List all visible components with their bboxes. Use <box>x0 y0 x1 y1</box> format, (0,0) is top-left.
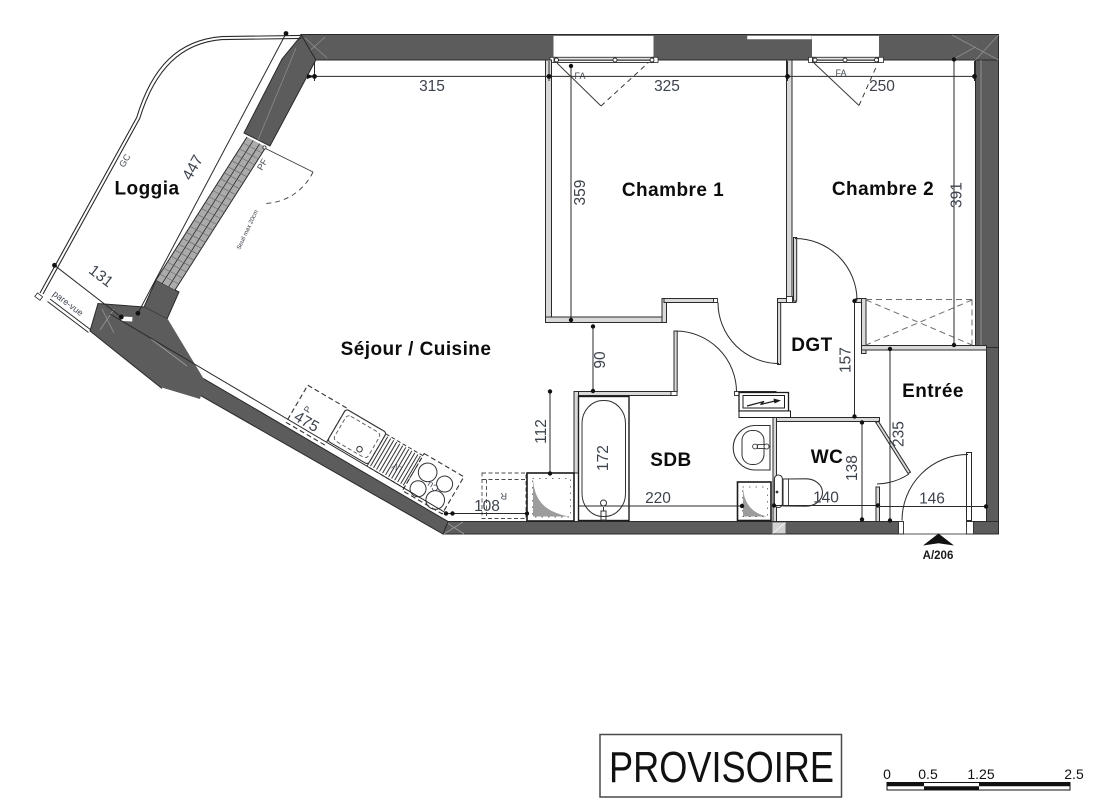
svg-text:250: 250 <box>869 78 895 95</box>
svg-text:Entrée: Entrée <box>902 381 964 402</box>
svg-text:220: 220 <box>645 490 671 507</box>
svg-text:157: 157 <box>838 347 855 373</box>
svg-text:FA: FA <box>574 71 585 81</box>
svg-text:Chambre 2: Chambre 2 <box>832 179 934 200</box>
svg-text:90: 90 <box>592 351 609 369</box>
svg-text:315: 315 <box>419 78 445 95</box>
svg-text:391: 391 <box>949 182 966 208</box>
svg-text:2.5: 2.5 <box>1064 766 1084 782</box>
svg-text:108: 108 <box>474 498 500 515</box>
svg-text:R: R <box>500 491 507 501</box>
svg-text:SDB: SDB <box>650 450 691 471</box>
svg-text:Loggia: Loggia <box>115 179 180 200</box>
svg-text:DGT: DGT <box>791 335 832 356</box>
svg-text:1.25: 1.25 <box>967 766 994 782</box>
svg-text:0.5: 0.5 <box>918 766 938 782</box>
svg-text:235: 235 <box>891 421 908 447</box>
svg-text:172: 172 <box>595 445 612 471</box>
svg-text:146: 146 <box>919 491 945 508</box>
svg-text:138: 138 <box>844 455 861 481</box>
svg-text:WC: WC <box>811 447 844 468</box>
svg-text:FA: FA <box>835 68 846 78</box>
svg-text:Séjour / Cuisine: Séjour / Cuisine <box>341 339 492 360</box>
svg-text:Chambre 1: Chambre 1 <box>622 180 724 201</box>
svg-text:0: 0 <box>883 766 891 782</box>
svg-text:140: 140 <box>813 490 839 507</box>
svg-text:112: 112 <box>533 419 550 444</box>
svg-text:PROVISOIRE: PROVISOIRE <box>609 743 834 792</box>
svg-text:359: 359 <box>572 180 589 206</box>
svg-text:A/206: A/206 <box>923 550 954 562</box>
svg-text:325: 325 <box>654 78 680 95</box>
